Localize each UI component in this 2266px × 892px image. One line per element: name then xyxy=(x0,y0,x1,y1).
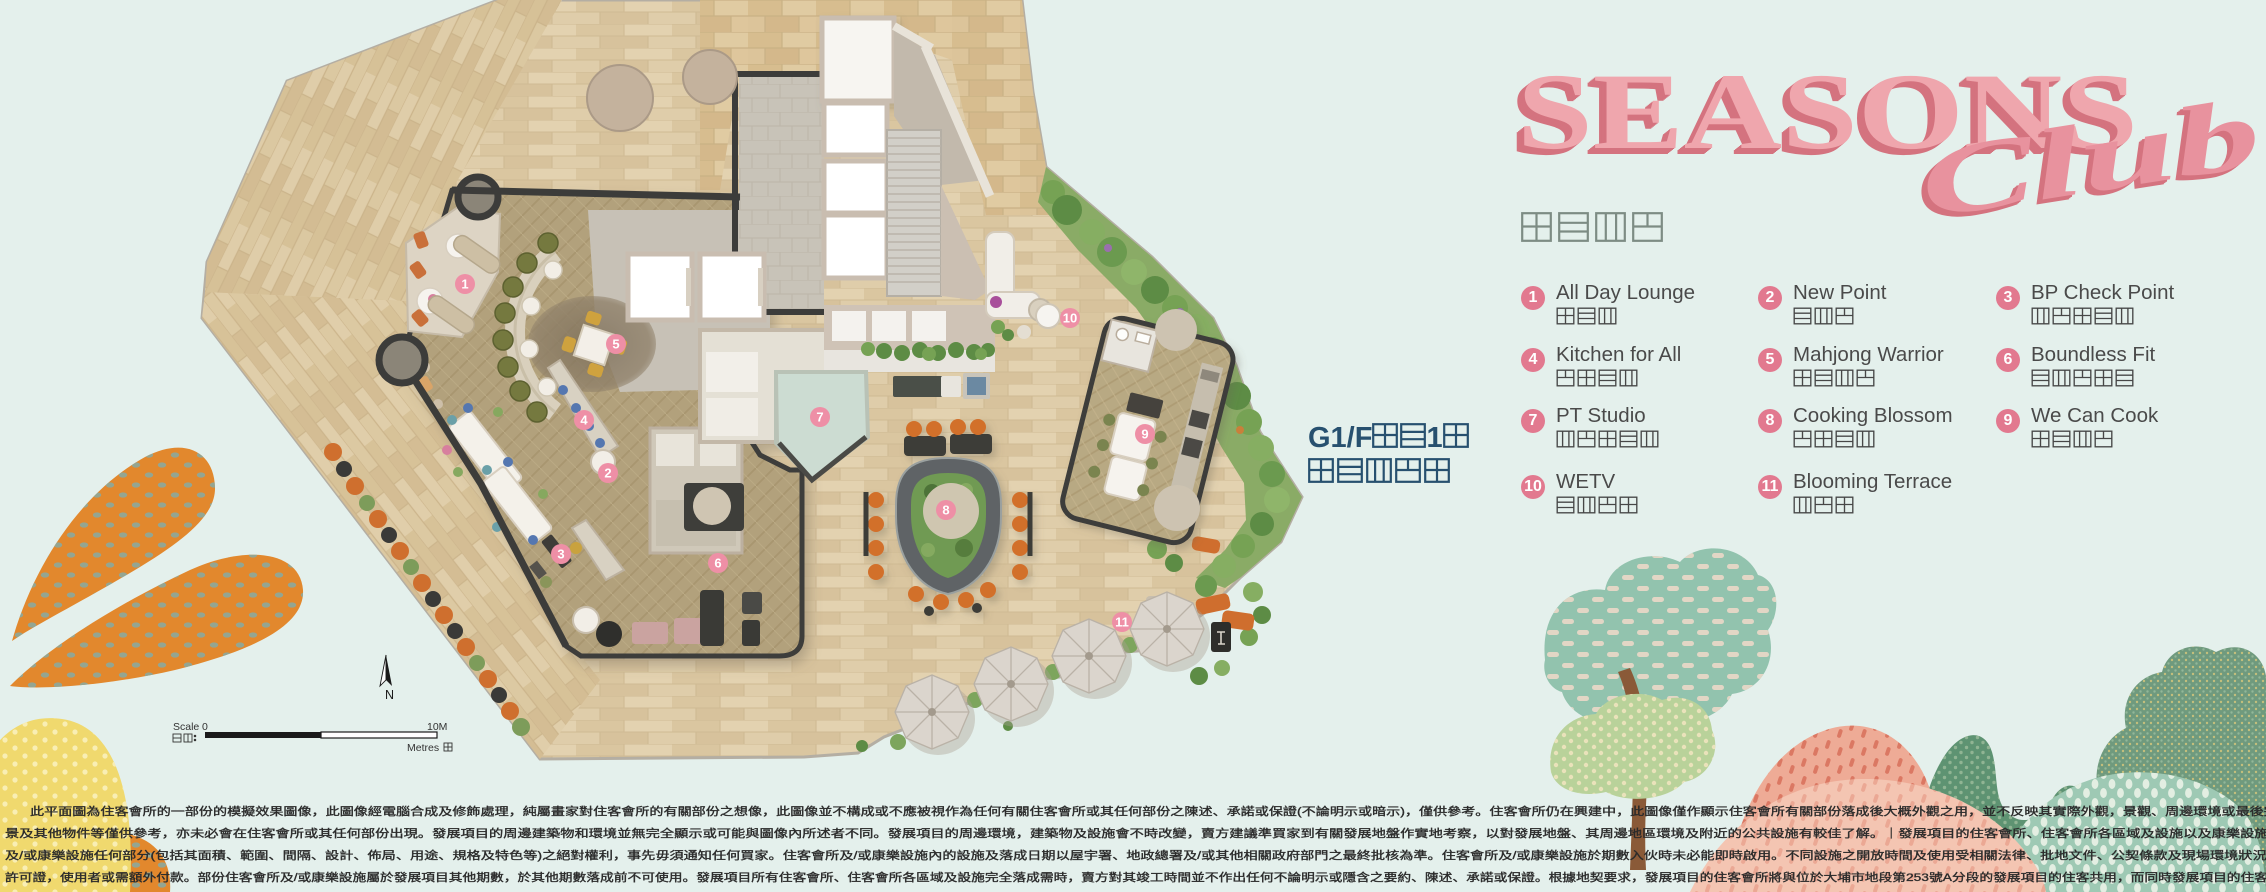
svg-text:0: 0 xyxy=(202,721,208,733)
svg-text:7: 7 xyxy=(816,410,823,425)
svg-text:Metres: Metres xyxy=(407,742,439,754)
svg-text:9: 9 xyxy=(1141,427,1148,442)
svg-text:1: 1 xyxy=(461,277,468,292)
svg-text:10M: 10M xyxy=(427,721,447,733)
svg-text:11: 11 xyxy=(1115,615,1129,630)
svg-text:2: 2 xyxy=(604,466,611,481)
svg-text:8: 8 xyxy=(942,503,949,518)
svg-text:N: N xyxy=(385,688,394,702)
svg-text:10: 10 xyxy=(1063,311,1077,326)
svg-text:6: 6 xyxy=(714,556,721,571)
svg-text:Scale: Scale xyxy=(173,721,199,733)
svg-text:5: 5 xyxy=(612,337,619,352)
svg-text:4: 4 xyxy=(580,413,588,428)
svg-text:3: 3 xyxy=(557,547,564,562)
